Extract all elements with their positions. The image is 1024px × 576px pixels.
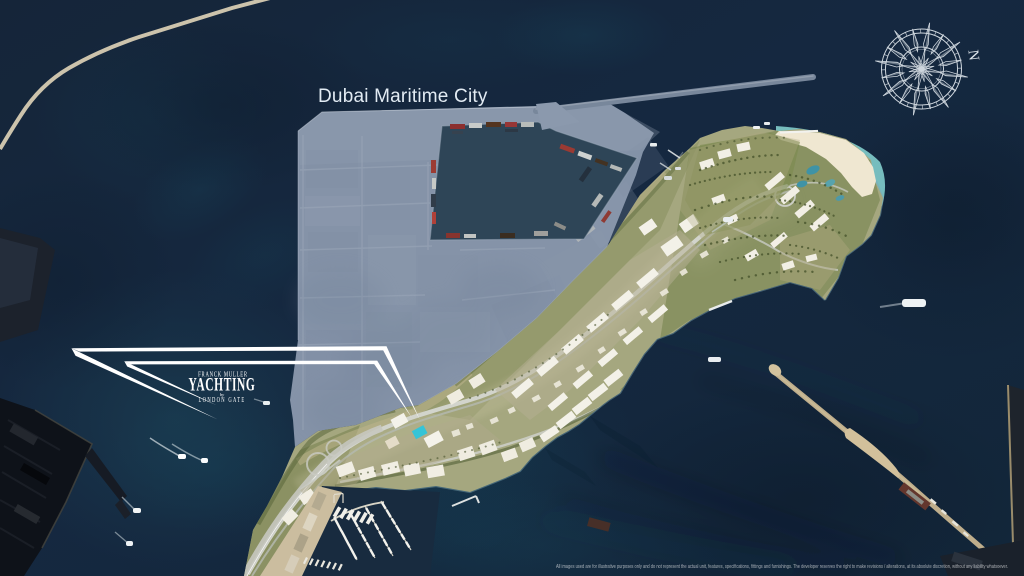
svg-text:N: N [964, 49, 981, 62]
svg-text:by: by [220, 392, 224, 397]
svg-text:All images used are for illust: All images used are for illustrative pur… [556, 564, 1008, 570]
svg-text:LONDON GATE: LONDON GATE [199, 397, 246, 404]
svg-text:Dubai Maritime City: Dubai Maritime City [318, 86, 488, 107]
